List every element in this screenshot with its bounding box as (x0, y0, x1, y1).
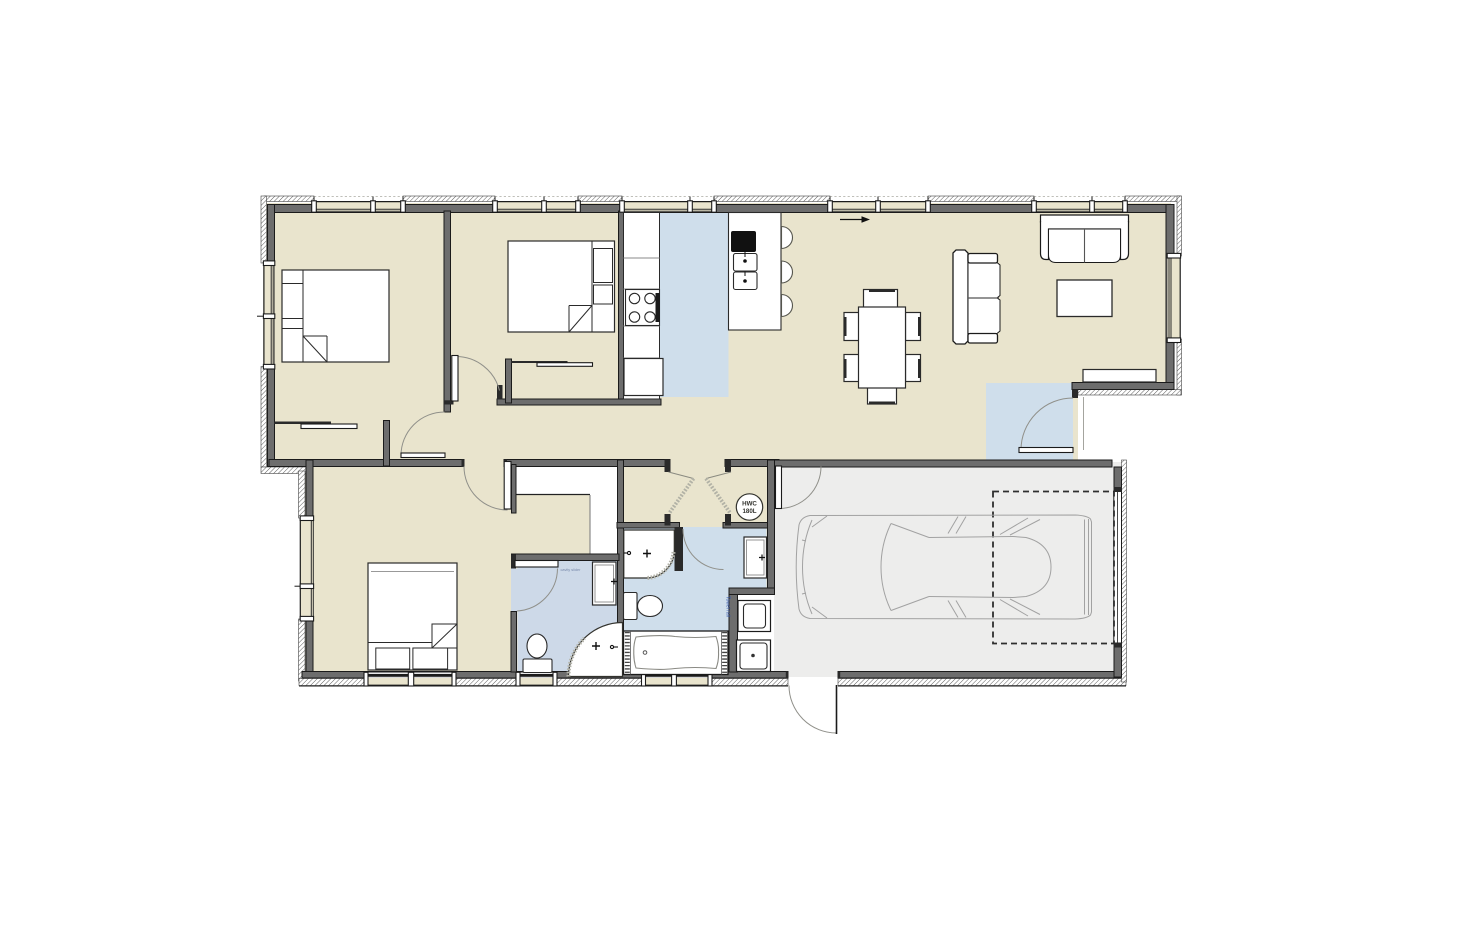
svg-text:cavity slider: cavity slider (561, 568, 582, 572)
svg-text:Towel rail: Towel rail (725, 596, 731, 617)
svg-text:180L: 180L (742, 508, 756, 515)
svg-text:HWC: HWC (742, 501, 757, 508)
